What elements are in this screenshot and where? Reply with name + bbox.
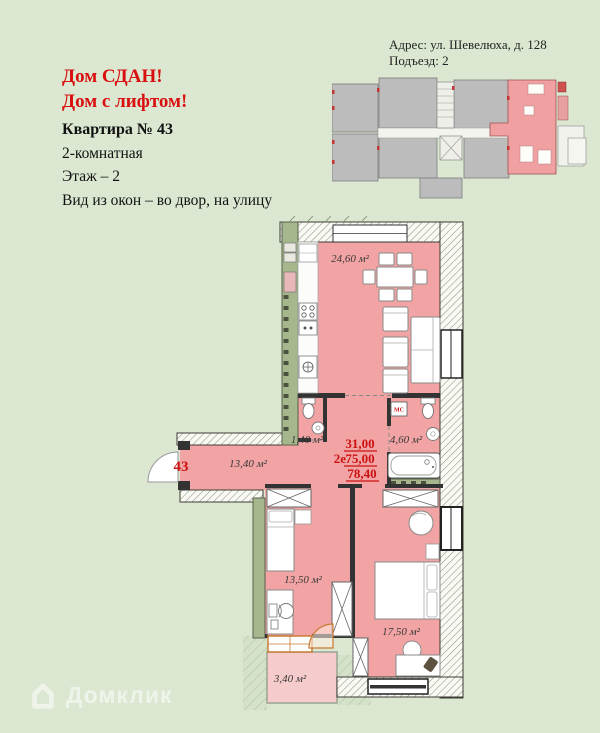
address-block: Адрес: ул. Шевелюха, д. 128 Подъезд: 2 [389, 37, 547, 68]
double-bed-icon [375, 562, 440, 619]
exterior-hatch-left [243, 636, 267, 710]
stove-icon [299, 303, 317, 335]
armchair-icon [383, 307, 408, 331]
hallway-area-label: 13,40 м² [229, 458, 268, 470]
watermark-text: Домклик [66, 682, 172, 709]
total-with-balcony-value: 78,40 [347, 466, 376, 481]
listing-floorplan-image: Дом СДАН! Дом с лифтом! Адрес: ул. Шевел… [0, 0, 600, 733]
promo-line-1: Дом СДАН! [62, 64, 187, 89]
nightstand-icon [426, 544, 439, 559]
washbasin-icon [427, 428, 440, 441]
monitor-icon [269, 604, 277, 617]
wardrobe-icon [332, 582, 352, 636]
entrance-line: Подъезд: 2 [389, 53, 547, 69]
promo-line-2: Дом с лифтом! [62, 89, 187, 114]
promo-banner: Дом СДАН! Дом с лифтом! [62, 64, 187, 114]
desk-icon [267, 590, 294, 634]
wardrobe-icon [267, 489, 311, 507]
stairwell-icon [437, 82, 454, 128]
apartment-floorplan: МС [140, 200, 470, 710]
living-area-label: 24,60 м² [331, 253, 370, 265]
plan-type-label: 2е [334, 451, 347, 466]
washing-machine-label: МС [394, 408, 404, 414]
house-icon [28, 680, 58, 710]
wardrobe-icon [383, 490, 438, 507]
armchair-icon [383, 369, 408, 393]
total-area-value: 75,00 [345, 451, 374, 466]
address-line: Адрес: ул. Шевелюха, д. 128 [389, 37, 547, 53]
apartment-rooms: 2-комнатная [62, 142, 272, 166]
round-chair-icon [409, 511, 433, 535]
apartment-floor: Этаж – 2 [62, 165, 272, 189]
apartment-info: Квартира № 43 2-комнатная Этаж – 2 Вид и… [62, 118, 272, 212]
balcony-area-label: 3,40 м² [273, 673, 307, 685]
armchair-icon [383, 337, 408, 367]
single-bed-icon [267, 509, 294, 571]
sink-icon [299, 356, 317, 378]
bathroom-area-label: 4,60 м² [390, 434, 423, 446]
wardrobe-icon [353, 638, 368, 676]
living-seating [383, 307, 440, 393]
elevator-icon [440, 136, 462, 160]
balcony-window [268, 636, 312, 652]
watermark: Домклик [28, 680, 172, 710]
bathtub-icon [388, 453, 440, 478]
bedroom1-area-label: 13,50 м² [284, 574, 323, 586]
kitchen-counter [298, 242, 318, 393]
apartment-title: Квартира № 43 [62, 118, 272, 142]
right-wing-details [558, 82, 586, 166]
living-area-value: 31,00 [345, 436, 374, 451]
office-chair-icon [279, 604, 294, 619]
bedroom2-area-label: 17,50 м² [382, 626, 421, 638]
apartment-number-label: 43 [174, 459, 189, 475]
wall-ticks [290, 216, 367, 221]
building-overview-plan [332, 76, 596, 200]
wc-area-label: 1,40 м² [291, 434, 324, 446]
washbasin-icon [312, 422, 324, 434]
nightstand-icon [295, 510, 311, 524]
